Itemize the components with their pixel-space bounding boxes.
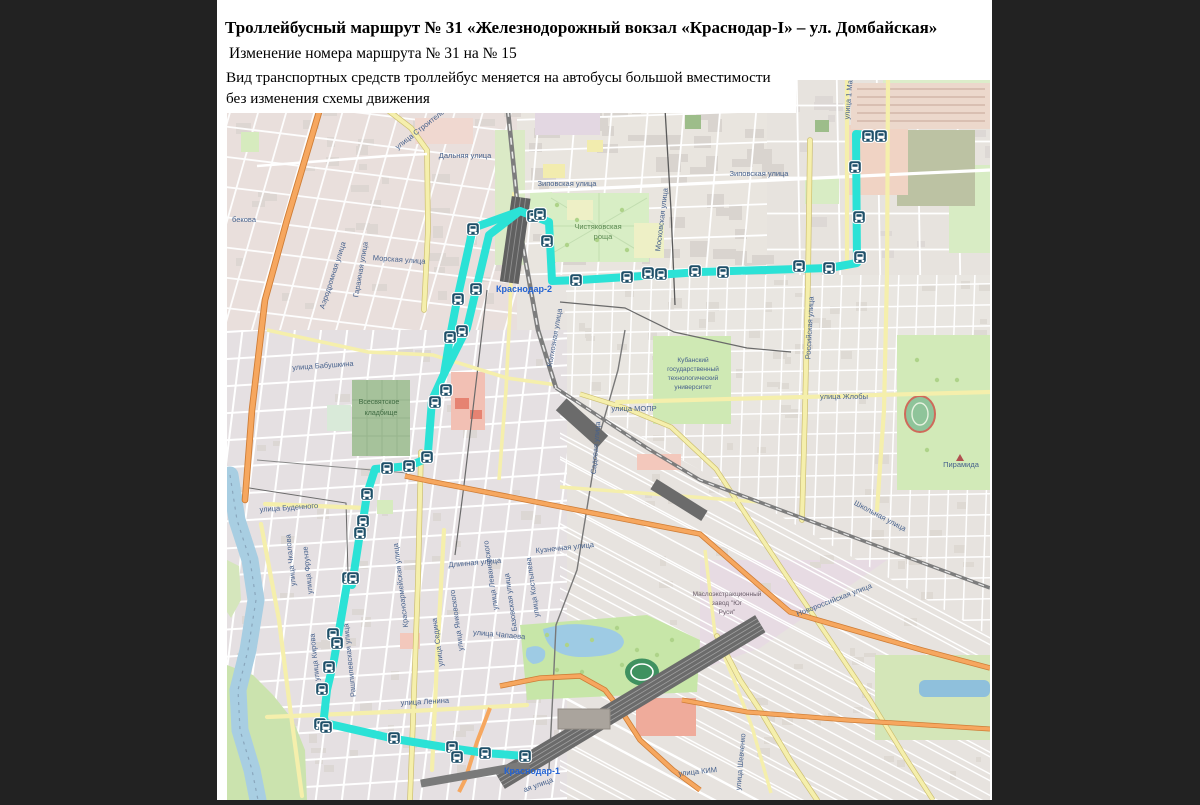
svg-text:Руси": Руси" [719,609,736,616]
svg-text:Всесвятское: Всесвятское [359,399,400,406]
svg-text:государственный: государственный [667,365,719,373]
svg-text:завод "Юг: завод "Юг [712,600,743,607]
svg-text:роща: роща [594,232,614,241]
svg-text:университет: университет [674,384,711,391]
svg-text:Дальняя улица: Дальняя улица [439,151,492,160]
svg-text:Маслоэкстракционный: Маслоэкстракционный [693,590,762,598]
svg-text:улица Жлобы: улица Жлобы [820,392,868,401]
svg-text:кладбище: кладбище [365,409,398,417]
svg-text:бекова: бекова [232,215,257,224]
svg-text:улица МОПР: улица МОПР [611,404,656,413]
svg-text:Зиповская улица: Зиповская улица [538,179,598,188]
svg-text:Зиповская улица: Зиповская улица [730,169,790,178]
svg-text:технологический: технологический [668,374,719,382]
svg-text:Пирамида: Пирамида [943,460,980,469]
svg-text:Кубанский: Кубанский [677,356,709,364]
svg-text:Краснодар-2: Краснодар-2 [496,284,552,294]
svg-text:Краснодар-1: Краснодар-1 [504,766,560,776]
svg-text:Чистяковская: Чистяковская [574,222,621,231]
